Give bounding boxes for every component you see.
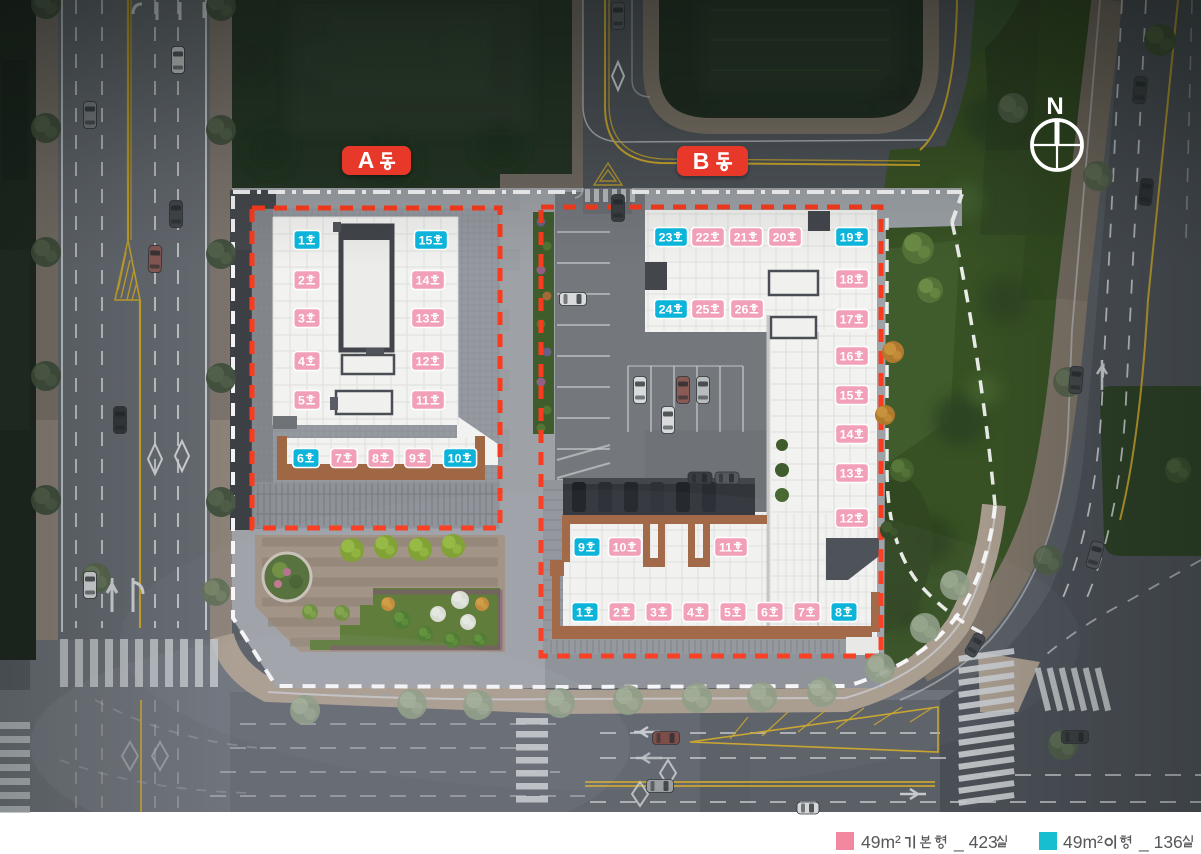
svg-text:6: 6 [761,605,768,619]
svg-text:10: 10 [448,451,462,465]
svg-text:49m²: 49m² [861,832,901,852]
svg-text:20: 20 [773,230,787,244]
svg-text:16: 16 [840,349,854,363]
svg-text:4: 4 [687,605,694,619]
svg-text:26: 26 [735,302,749,316]
svg-text:4: 4 [298,354,305,368]
svg-text:3: 3 [650,605,657,619]
svg-text:5: 5 [724,605,731,619]
svg-text:49m²: 49m² [1063,832,1103,852]
svg-text:2: 2 [298,273,305,287]
svg-text:9: 9 [409,451,416,465]
svg-text:17: 17 [840,312,854,326]
svg-text:1: 1 [298,233,305,247]
svg-text:N: N [1046,93,1063,120]
svg-text:B: B [693,148,710,174]
svg-text:22: 22 [696,230,710,244]
svg-text:5: 5 [298,393,305,407]
svg-text:25: 25 [696,302,710,316]
svg-text:8: 8 [835,605,842,619]
svg-text:9: 9 [578,540,585,554]
svg-text:12: 12 [416,354,430,368]
svg-text:15: 15 [840,388,854,402]
svg-text:11: 11 [719,540,732,554]
svg-text:15: 15 [419,233,433,247]
svg-text:19: 19 [840,230,854,244]
svg-text:_ 136: _ 136 [1138,832,1183,853]
svg-text:14: 14 [416,273,430,287]
svg-text:12: 12 [840,511,854,525]
svg-text:3: 3 [298,311,305,325]
svg-text:13: 13 [840,466,854,480]
svg-text:18: 18 [840,272,854,286]
svg-text:10: 10 [613,540,627,554]
svg-text:2: 2 [613,605,620,619]
svg-text:8: 8 [372,451,379,465]
svg-text:21: 21 [734,230,748,244]
svg-text:23: 23 [659,230,673,244]
svg-text:7: 7 [798,605,805,619]
svg-text:24: 24 [659,302,673,316]
svg-text:11: 11 [416,393,429,407]
svg-text:1: 1 [576,605,583,619]
svg-text:6: 6 [297,451,304,465]
svg-text:7: 7 [335,451,342,465]
svg-text:14: 14 [840,427,854,441]
svg-text:13: 13 [416,311,430,325]
svg-text:_ 423: _ 423 [953,832,998,853]
svg-text:A: A [358,147,375,173]
